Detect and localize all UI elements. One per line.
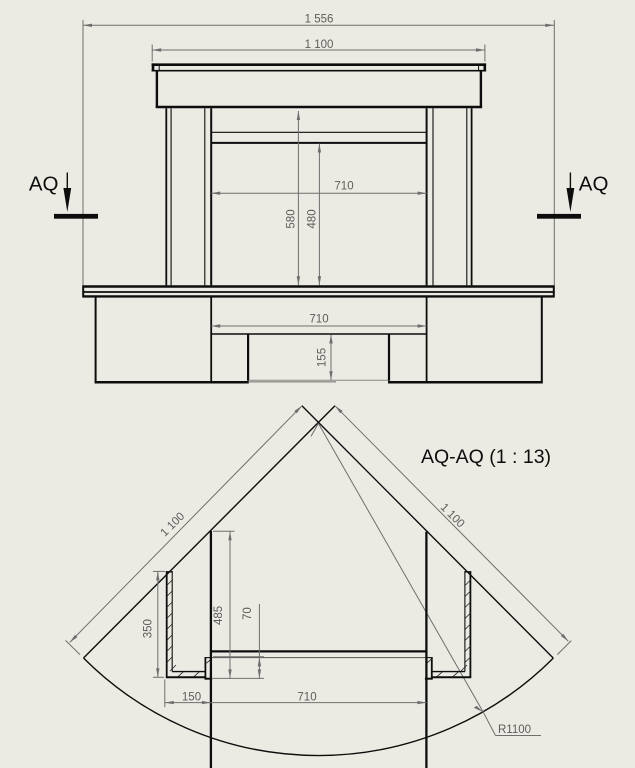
svg-text:710: 710: [334, 181, 353, 193]
svg-text:150: 150: [182, 691, 201, 703]
svg-text:1 100: 1 100: [305, 39, 334, 51]
svg-text:R1100: R1100: [498, 724, 531, 736]
svg-text:AQ: AQ: [29, 173, 59, 196]
svg-text:710: 710: [297, 691, 316, 703]
svg-text:350: 350: [142, 619, 154, 638]
svg-text:AQ: AQ: [579, 173, 609, 196]
svg-text:AQ-AQ (1 : 13): AQ-AQ (1 : 13): [421, 446, 551, 468]
svg-text:485: 485: [213, 606, 225, 625]
svg-text:480: 480: [307, 209, 319, 228]
svg-text:1 556: 1 556: [305, 14, 334, 26]
svg-text:70: 70: [242, 607, 254, 620]
svg-text:580: 580: [286, 209, 298, 228]
svg-text:710: 710: [309, 314, 328, 326]
svg-text:155: 155: [316, 348, 328, 367]
